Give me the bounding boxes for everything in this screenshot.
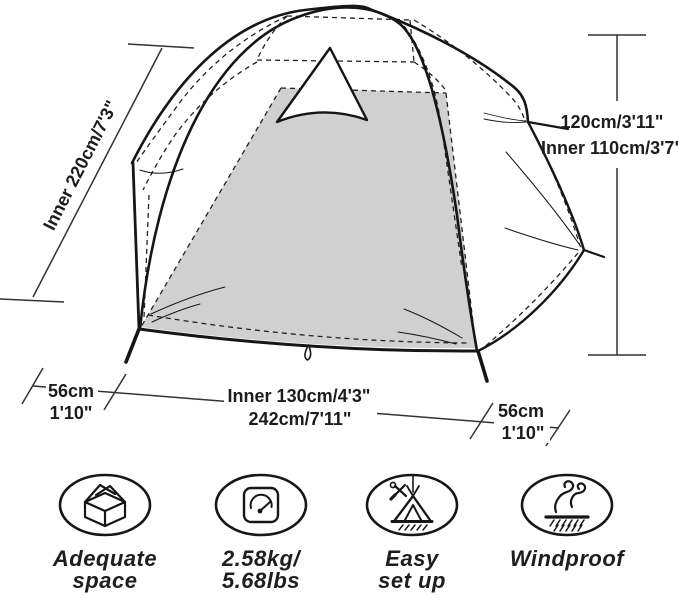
dim-left-vestibule-cm: 56cm: [48, 381, 94, 401]
feature-label-line2: space: [53, 570, 157, 592]
dim-left-vestibule-ft: 1'10": [50, 403, 93, 423]
feature-label-line2: set up: [378, 570, 446, 592]
tent-setup-icon: [364, 472, 460, 540]
feature-label: Windproof: [510, 548, 624, 570]
feature-label-line1: Easy: [378, 548, 446, 570]
feature-label-line1: Adequate: [53, 548, 157, 570]
dim-outer-height: 120cm/3'11": [561, 112, 664, 132]
feature-label: Easy set up: [378, 548, 446, 593]
wind-icon: [519, 472, 615, 540]
feature-easy-setup: Easy set up: [342, 472, 482, 593]
feature-label-line1: Windproof: [510, 548, 624, 570]
feature-label: Adequate space: [53, 548, 157, 593]
open-box-icon: [57, 472, 153, 540]
feature-label: 2.58kg/ 5.68lbs: [222, 548, 300, 593]
dim-inner-width: Inner 130cm/4'3": [228, 386, 371, 406]
dim-total-width: 242cm/7'11": [249, 409, 352, 429]
scale-icon: [213, 472, 309, 540]
tent-door-peak: [277, 48, 367, 122]
tent-product-diagram: Inner 220cm/7'3" 120cm/3'11" Inner 110cm…: [0, 0, 679, 599]
dim-inner-height: Inner 110cm/3'7": [541, 138, 679, 158]
feature-windproof: Windproof: [497, 472, 637, 570]
dim-right-vestibule-ft: 1'10": [502, 423, 545, 443]
dim-inner-length: Inner 220cm/7'3": [39, 97, 122, 233]
dim-right-vestibule-cm: 56cm: [498, 401, 544, 421]
feature-label-line1: 2.58kg/: [222, 548, 300, 570]
feature-weight: 2.58kg/ 5.68lbs: [191, 472, 331, 593]
feature-row: Adequate space 2.58kg/ 5.68lbs: [0, 472, 679, 599]
feature-label-line2: 5.68lbs: [222, 570, 300, 592]
feature-adequate-space: Adequate space: [35, 472, 175, 593]
tent-diagram: Inner 220cm/7'3" 120cm/3'11" Inner 110cm…: [0, 0, 679, 466]
